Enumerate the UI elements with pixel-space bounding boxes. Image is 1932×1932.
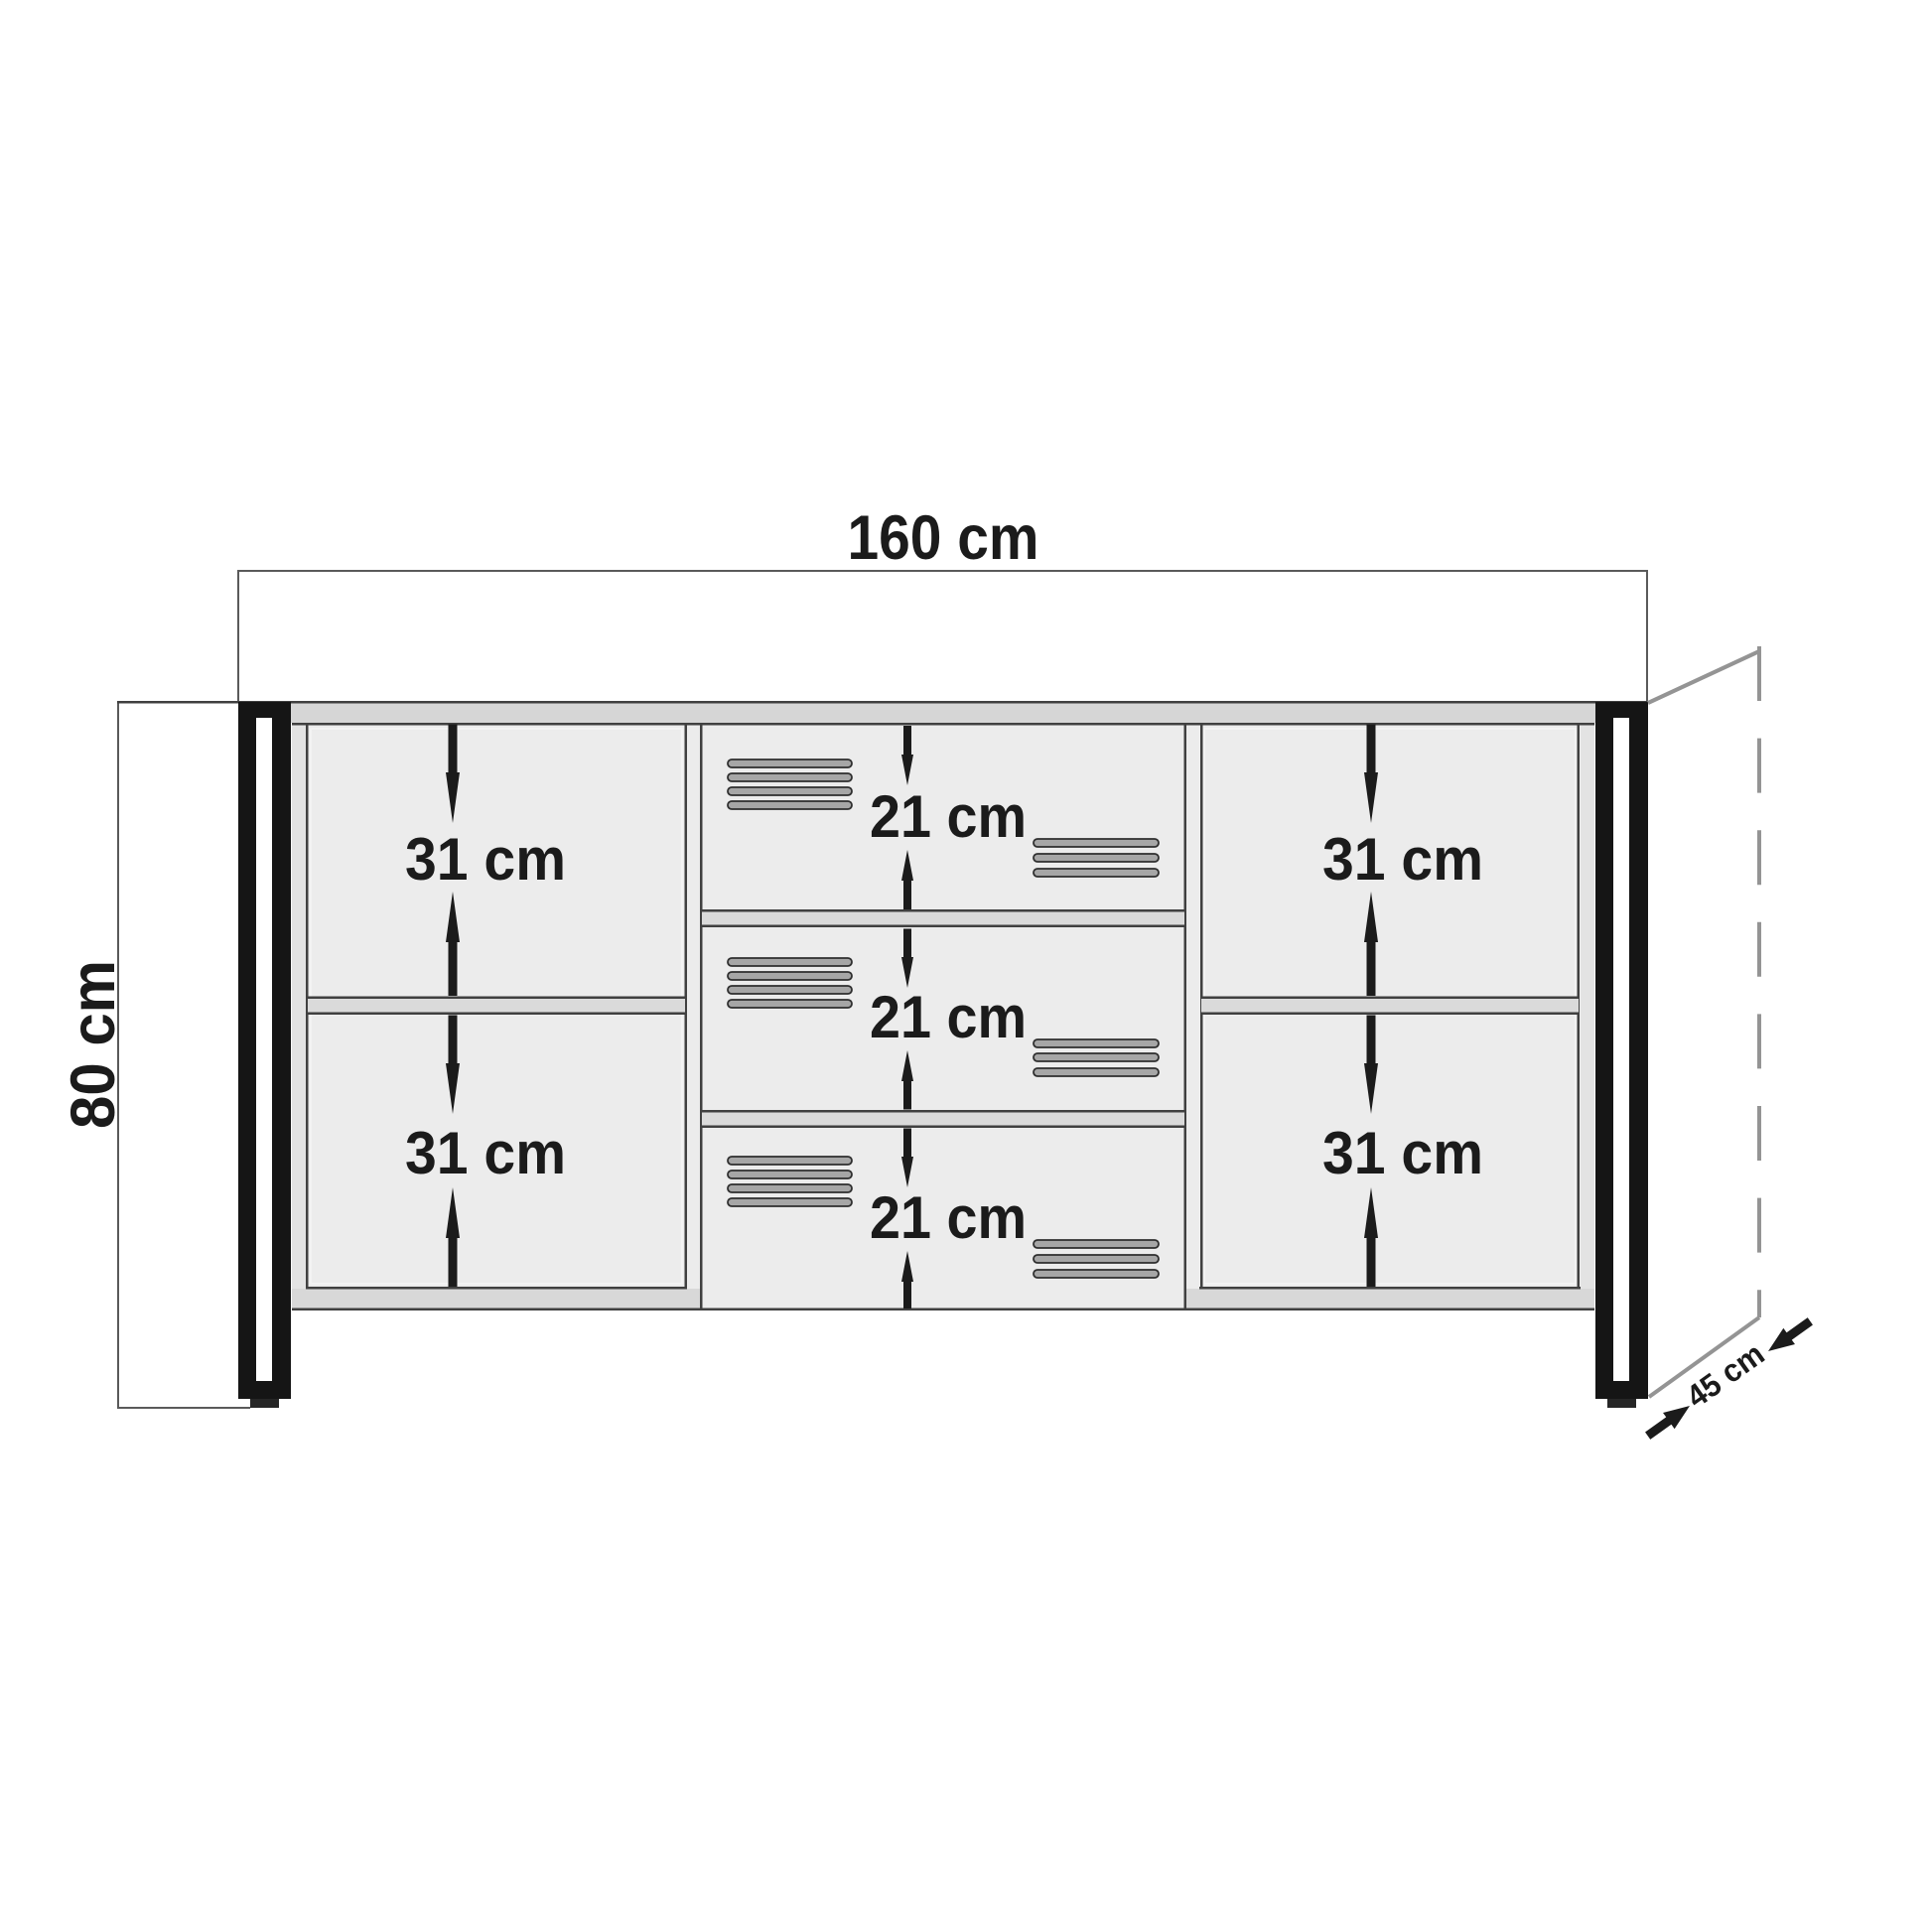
svg-text:31 cm: 31 cm (1322, 826, 1483, 893)
svg-text:21 cm: 21 cm (870, 1184, 1027, 1251)
svg-text:31 cm: 31 cm (405, 1120, 566, 1186)
svg-text:160 cm: 160 cm (848, 503, 1039, 573)
svg-text:31 cm: 31 cm (405, 826, 566, 893)
svg-text:21 cm: 21 cm (870, 984, 1027, 1050)
svg-text:21 cm: 21 cm (870, 783, 1027, 850)
svg-text:31 cm: 31 cm (1322, 1120, 1483, 1186)
